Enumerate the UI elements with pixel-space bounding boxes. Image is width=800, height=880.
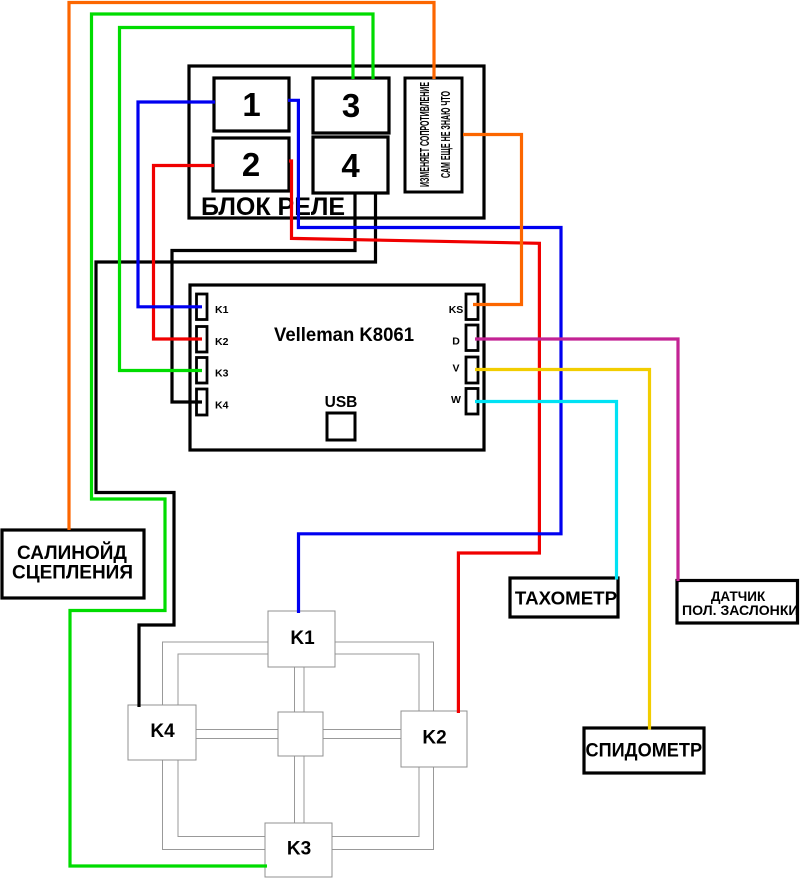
svg-text:1: 1 (242, 86, 260, 123)
svg-text:V: V (452, 363, 459, 375)
svg-text:K1: K1 (290, 628, 315, 649)
svg-text:ПОЛ. ЗАСЛОНКИ: ПОЛ. ЗАСЛОНКИ (682, 603, 799, 618)
svg-text:W: W (451, 394, 461, 406)
svg-text:KS: KS (449, 304, 464, 316)
svg-text:БЛОК РЕЛЕ: БЛОК РЕЛЕ (201, 193, 345, 221)
svg-text:ИЗМЕНЯЕТ СОПРОТИВЛЕНИЕ: ИЗМЕНЯЕТ СОПРОТИВЛЕНИЕ (417, 82, 432, 187)
svg-text:K1: K1 (215, 304, 229, 316)
svg-text:САЛИНОЙД: САЛИНОЙД (17, 542, 127, 564)
svg-text:3: 3 (342, 87, 360, 124)
svg-text:K2: K2 (422, 728, 446, 749)
svg-text:K2: K2 (215, 336, 229, 348)
svg-text:САМ ЕЩЕ НЕ ЗНАЮ ЧТО: САМ ЕЩЕ НЕ ЗНАЮ ЧТО (438, 91, 453, 178)
svg-text:ДАТЧИК: ДАТЧИК (711, 589, 766, 604)
svg-text:K4: K4 (215, 400, 229, 412)
svg-text:СЦЕПЛЕНИЯ: СЦЕПЛЕНИЯ (12, 563, 133, 584)
svg-text:K4: K4 (150, 721, 175, 742)
svg-text:СПИДОМЕТР: СПИДОМЕТР (586, 741, 703, 762)
svg-text:K3: K3 (287, 839, 311, 860)
svg-text:2: 2 (242, 146, 260, 183)
svg-text:4: 4 (341, 147, 360, 184)
svg-text:ТАХОМЕТР: ТАХОМЕТР (515, 588, 617, 609)
svg-text:K3: K3 (215, 368, 229, 380)
svg-text:USB: USB (325, 394, 358, 411)
svg-text:D: D (452, 336, 460, 348)
svg-text:Velleman K8061: Velleman K8061 (274, 325, 414, 346)
